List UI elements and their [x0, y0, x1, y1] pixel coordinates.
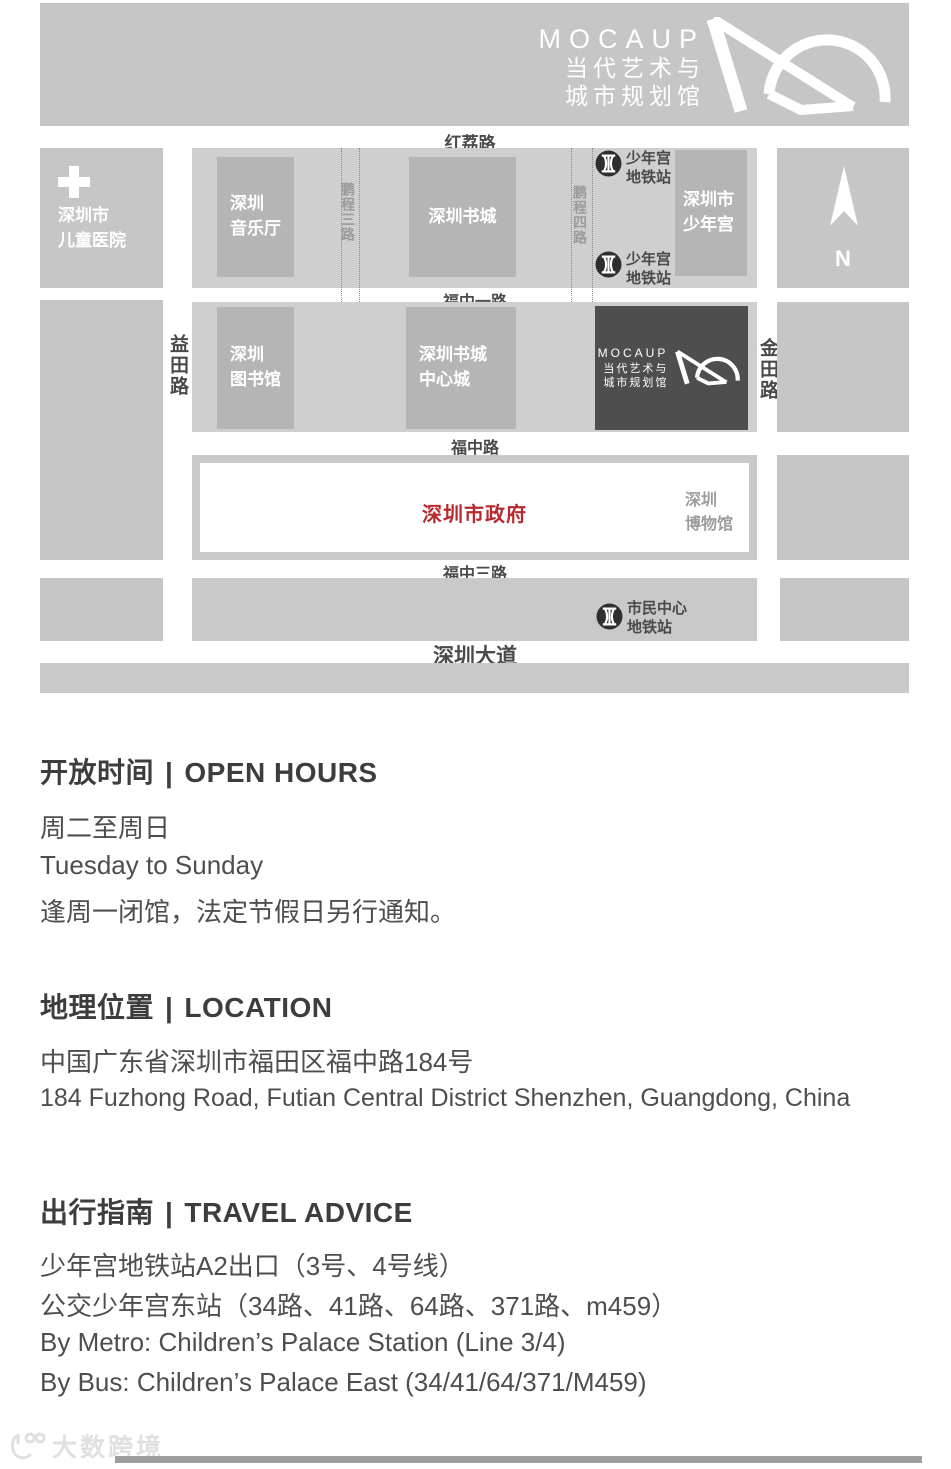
hospital-label: 深圳市 儿童医院 — [58, 204, 126, 253]
metro-label-children-palace-lower: 少年宫 地铁站 — [626, 251, 671, 289]
metro-label-civic-center: 市民中心 地铁站 — [627, 600, 687, 638]
map-block-government-area: 深圳市政府 深圳 博物馆 — [192, 455, 757, 560]
map-block-mocaup: MOCAUP 当代艺术与 城市规划馆 — [595, 306, 748, 430]
title-divider: | — [165, 992, 173, 1023]
map-block-compass: N — [777, 148, 909, 288]
map-block-east-row3 — [777, 455, 909, 560]
map-block-row1-area: 深圳 音乐厅 深圳书城 深圳市 少年宫 — [192, 148, 757, 288]
location-line-en: 184 Fuzhong Road, Futian Central Distric… — [40, 1084, 850, 1113]
mocaup-logo: MOCAUP 当代艺术与 城市规划馆 — [538, 23, 705, 111]
open-hours-line-en: Tuesday to Sunday — [40, 850, 263, 881]
map-block-east-row2 — [777, 302, 909, 432]
hospital-cross-icon — [58, 166, 90, 198]
section-title-travel-advice: 出行指南|TRAVEL ADVICE — [40, 1191, 413, 1231]
government-label: 深圳市政府 — [200, 498, 749, 527]
compass-n-label: N — [777, 246, 909, 272]
museum-label: 深圳 博物馆 — [685, 489, 733, 537]
mocaup-logo-line1: MOCAUP — [538, 23, 705, 55]
page: MOCAUP 当代艺术与 城市规划馆 红荔路 福中一路 福中路 福中三路 深圳大… — [0, 0, 951, 1469]
map-block-west — [40, 300, 163, 560]
map-block-childrens-hospital: 深圳市 儿童医院 — [40, 148, 163, 288]
road-label-pengchengsilu: 鹏程四路 — [573, 185, 590, 245]
section-title-location: 地理位置|LOCATION — [40, 986, 333, 1026]
metro-label-children-palace-upper: 少年宫 地铁站 — [626, 150, 671, 188]
open-hours-note: 逢周一闭馆，法定节假日另行通知。 — [40, 892, 456, 929]
open-hours-line-zh: 周二至周日 — [40, 808, 170, 845]
travel-metro-zh: 少年宫地铁站A2出口（3号、4号线） — [40, 1246, 465, 1283]
map-bottom-band — [40, 663, 909, 693]
map-block-children-palace: 深圳市 少年宫 — [675, 150, 747, 276]
mocaup-logo-mark-icon — [706, 17, 906, 115]
footer-bar — [115, 1456, 922, 1463]
mocaup-logo-line2: 当代艺术与 — [538, 55, 705, 83]
map-block-southwest — [40, 578, 163, 641]
section-title-open-hours: 开放时间|OPEN HOURS — [40, 751, 378, 791]
map-block-library: 深圳 图书馆 — [217, 307, 294, 429]
metro-icon — [595, 150, 622, 177]
road-label-yitianlu: 益田路 — [163, 334, 191, 397]
metro-icon — [596, 603, 623, 630]
mocaup-logo-line3: 城市规划馆 — [538, 83, 705, 111]
travel-bus-zh: 公交少年宫东站（34路、41路、64路、371路、m459） — [40, 1286, 677, 1323]
title-divider: | — [165, 1197, 173, 1228]
header-band: MOCAUP 当代艺术与 城市规划馆 — [40, 3, 909, 126]
map-block-southeast — [780, 578, 909, 641]
government-inner: 深圳市政府 深圳 博物馆 — [200, 463, 749, 552]
mocaup-logo-mark-icon — [675, 348, 745, 388]
compass-north-icon — [825, 166, 863, 242]
map-block-concert-hall: 深圳 音乐厅 — [217, 157, 294, 277]
title-divider: | — [165, 757, 173, 788]
map-block-row2-area: 深圳 图书馆 深圳书城 中心城 MOCAUP 当代艺术与 城市规划馆 — [192, 302, 757, 432]
travel-bus-en: By Bus: Children’s Palace East (34/41/64… — [40, 1367, 647, 1398]
watermark-logo-icon — [8, 1430, 46, 1462]
metro-icon — [595, 251, 622, 278]
mocaup-block-logo: MOCAUP 当代艺术与 城市规划馆 — [598, 346, 669, 390]
map-block-book-city-central: 深圳书城 中心城 — [406, 307, 516, 429]
map-block-book-city: 深圳书城 — [409, 157, 516, 277]
travel-metro-en: By Metro: Children’s Palace Station (Lin… — [40, 1327, 566, 1358]
location-line-zh: 中国广东省深圳市福田区福中路184号 — [40, 1042, 473, 1079]
road-label-pengchengsanlu: 鹏程三路 — [342, 182, 358, 242]
